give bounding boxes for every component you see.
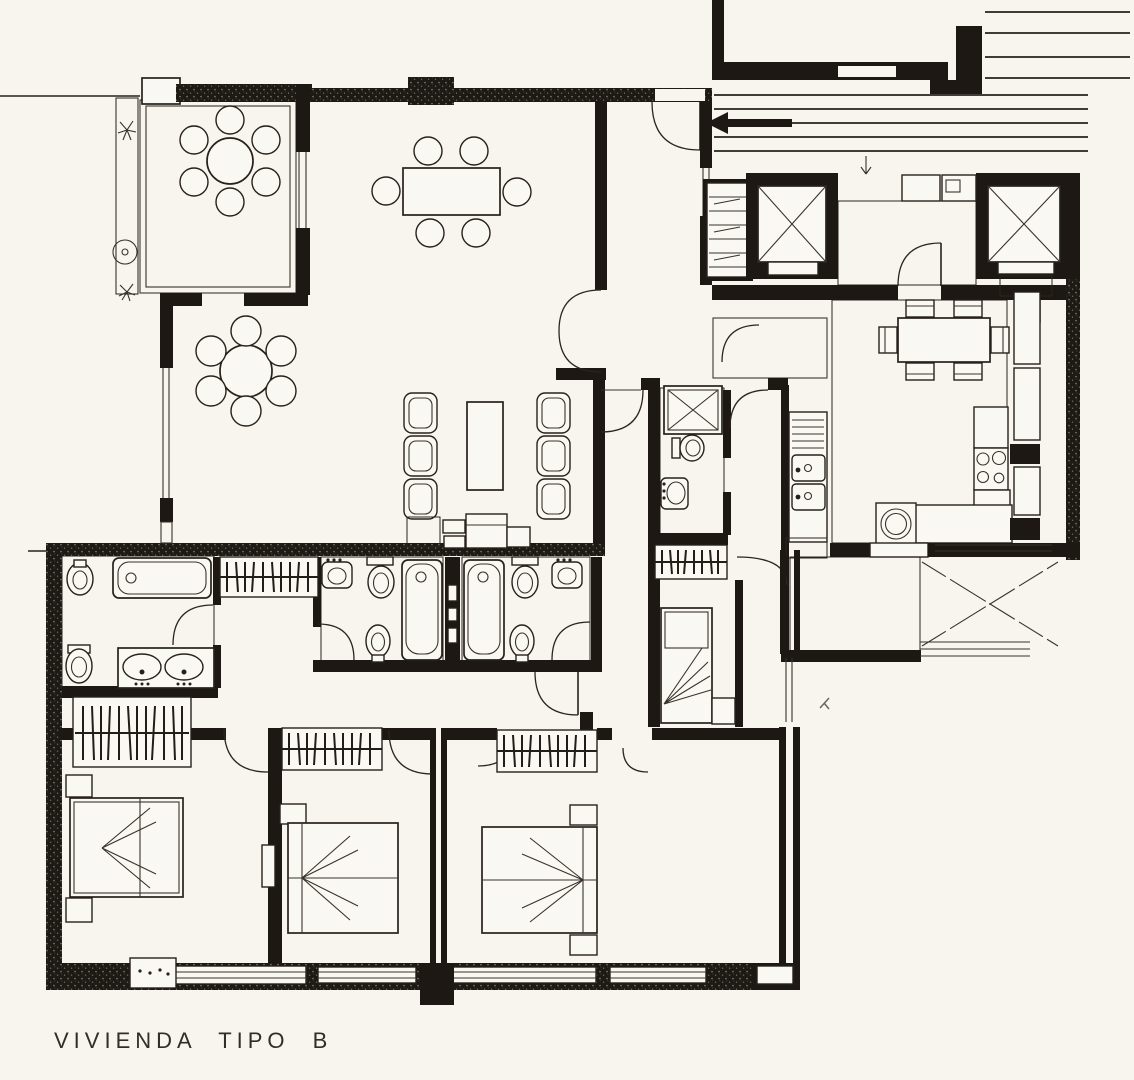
bathtub <box>464 560 504 660</box>
kitchen-table-set <box>879 300 1009 380</box>
dining-table <box>403 168 500 215</box>
lobby-floor <box>838 201 976 285</box>
column <box>408 77 454 105</box>
bathroom-3 <box>464 557 590 662</box>
nightstand <box>570 935 597 955</box>
nightstand <box>712 698 735 724</box>
floor-plan-sheet: VIVIENDA TIPO B <box>0 0 1134 1080</box>
kitchen-counter-right <box>914 407 1012 543</box>
coffee-table <box>467 402 503 490</box>
floor-plan-drawing <box>0 0 1134 1080</box>
bedroom1-door-swing <box>224 728 268 772</box>
drying-floor <box>790 557 920 652</box>
nightstand <box>66 775 92 797</box>
direction-arrow-icon <box>706 112 792 134</box>
clothesline <box>922 562 1058 646</box>
bidet <box>67 563 93 595</box>
double-entry-door <box>559 290 601 372</box>
nightstand <box>570 805 597 825</box>
terrace-window <box>299 152 306 228</box>
bedroom-3 <box>482 730 597 955</box>
service-entry-door-swing <box>898 243 941 286</box>
kitchen-window <box>870 543 928 557</box>
service-washbasin <box>661 478 688 509</box>
hall-closet <box>220 557 318 597</box>
bidet <box>366 625 390 657</box>
plant-icon <box>113 121 137 301</box>
double-bed <box>70 798 183 897</box>
entry-arrow-icon <box>861 156 871 174</box>
terrace-table-set <box>180 106 280 216</box>
entry-door-swing <box>652 102 700 150</box>
shower <box>664 386 722 434</box>
bedroom-1 <box>66 775 183 922</box>
bedroom1-closet <box>73 697 191 767</box>
main-bathroom <box>66 558 214 688</box>
corridor-divider-door-swing <box>535 672 578 715</box>
nightstand <box>66 898 92 922</box>
elevator-left <box>746 173 838 279</box>
sofa-set <box>404 393 570 519</box>
terrace <box>113 84 310 306</box>
toilet <box>66 649 92 683</box>
bathtub <box>402 560 442 660</box>
hall-floor <box>713 318 827 378</box>
shelf <box>262 845 275 887</box>
living-window <box>163 368 169 498</box>
bath3-door-swing <box>552 622 590 660</box>
bedroom3-entry-door-swing <box>623 748 648 772</box>
bathroom-2 <box>318 557 442 662</box>
duct-shafts <box>1010 292 1040 540</box>
planter-strip <box>116 98 138 294</box>
hall-kitchen-door-swing <box>722 325 759 362</box>
main-bath-door-swing <box>173 605 213 645</box>
nightstand <box>280 804 306 824</box>
service-wardrobe <box>655 545 727 579</box>
kitchen-table <box>898 318 990 362</box>
kitchen <box>781 292 1080 558</box>
bidet <box>510 625 534 657</box>
single-bed <box>661 608 712 723</box>
hall-corridor-door-swing <box>601 390 643 432</box>
service-corridor-door-swing <box>730 390 768 428</box>
service-lower-door-swing <box>737 557 787 585</box>
bathrooms <box>62 557 602 698</box>
lounge-round-table-set <box>196 316 296 426</box>
duct-box <box>942 175 976 201</box>
service-rooms <box>648 378 800 727</box>
service-toilet <box>672 435 704 461</box>
service-window <box>786 658 792 722</box>
washer <box>876 503 916 545</box>
planter-box <box>142 78 180 104</box>
bedroom-2 <box>262 728 398 933</box>
bath2-door-swing <box>318 624 354 660</box>
plan-title: VIVIENDA TIPO B <box>54 1028 332 1054</box>
bathtub <box>113 558 211 598</box>
kitchen-counter-left <box>789 412 827 542</box>
dining-table-set <box>372 137 531 247</box>
scan-artifact <box>820 698 829 709</box>
duct-box <box>902 175 940 201</box>
